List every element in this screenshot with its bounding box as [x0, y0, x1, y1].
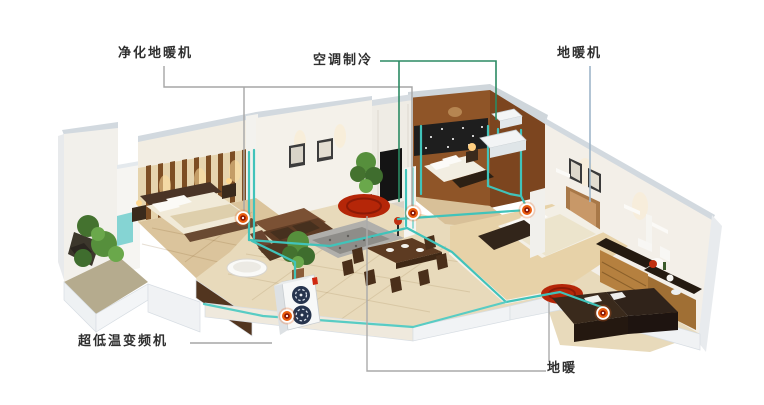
glass-panel	[117, 212, 133, 246]
bedroom2-brown-wall	[408, 84, 548, 208]
hotspot-marker-1	[235, 210, 252, 227]
label-ac-cooling: 空调制冷	[313, 54, 373, 67]
brand-tag	[312, 277, 318, 285]
hotspot-marker-3	[519, 202, 536, 219]
picture-frame	[289, 143, 305, 168]
picture-frame	[317, 138, 333, 162]
lamp-glow	[136, 200, 142, 206]
hotspot-marker-2	[405, 205, 422, 222]
hotspot-marker-5	[595, 305, 612, 322]
bottle	[663, 262, 666, 270]
low-partition-wall	[530, 188, 545, 258]
fan-grille-icon	[292, 286, 310, 304]
heated-floor-zone-living	[338, 194, 390, 218]
sink-basin	[671, 289, 681, 295]
lamp-glow	[468, 143, 476, 151]
hotspot-marker-4	[279, 308, 296, 325]
label-floor-heating: 地暖	[547, 362, 577, 375]
apartment-hvac-diagram: 净化地暖机 空调制冷 地暖机 超低温变频机 地暖	[0, 0, 764, 405]
label-ultra-low-temp-inverter-unit: 超低温变频机	[78, 335, 168, 348]
nightstand	[132, 205, 146, 222]
label-floor-heating-unit: 地暖机	[557, 47, 602, 60]
bathtub-area	[227, 259, 267, 277]
kettle	[667, 275, 674, 282]
label-purify-floor-heating-unit: 净化地暖机	[118, 47, 193, 60]
balcony-walls	[58, 122, 140, 286]
red-bowl	[649, 260, 657, 268]
lamp-glow	[226, 178, 232, 184]
